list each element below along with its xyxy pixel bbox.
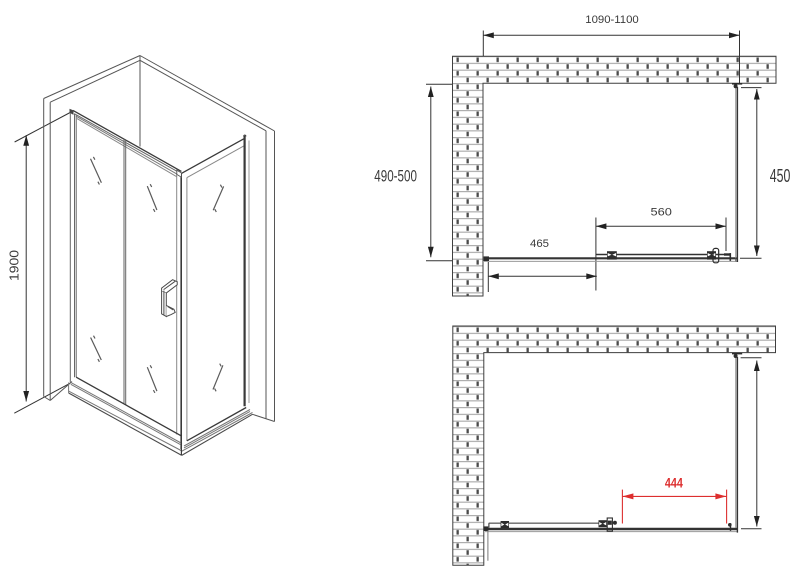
svg-text:444: 444 <box>665 474 683 490</box>
svg-text:490-500: 490-500 <box>374 168 417 186</box>
svg-text:1900: 1900 <box>7 250 22 281</box>
svg-text:1090-1100: 1090-1100 <box>585 14 639 26</box>
svg-text:560: 560 <box>651 206 672 218</box>
svg-text:465: 465 <box>530 238 549 250</box>
svg-text:450: 450 <box>770 166 791 187</box>
